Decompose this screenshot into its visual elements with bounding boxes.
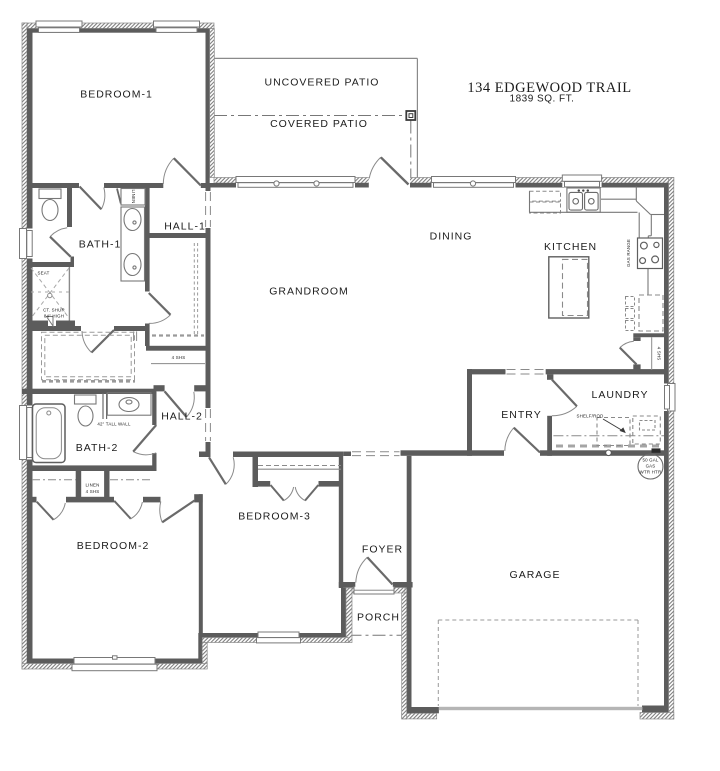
svg-text:GARAGE: GARAGE [510,569,561,581]
svg-text:CT. SHUR: CT. SHUR [43,308,65,313]
svg-text:ENTRY: ENTRY [501,409,541,421]
svg-text:KITCHEN: KITCHEN [544,241,597,253]
svg-text:1839 SQ. FT.: 1839 SQ. FT. [510,94,575,105]
svg-text:4 SHS: 4 SHS [86,489,100,494]
svg-text:GAS RANGE: GAS RANGE [626,239,631,267]
svg-text:SHELF/ROD: SHELF/ROD [577,414,604,419]
svg-text:SEAT: SEAT [38,271,50,276]
svg-text:GAS: GAS [646,464,656,469]
svg-text:42" TALL WALL: 42" TALL WALL [97,422,131,427]
svg-text:BEDROOM-1: BEDROOM-1 [80,89,153,101]
svg-text:HALL-1: HALL-1 [164,221,206,233]
svg-text:LAUNDRY: LAUNDRY [592,389,649,401]
svg-text:WTR HTR: WTR HTR [640,470,662,475]
svg-text:BATH-1: BATH-1 [79,239,122,251]
svg-text:HALL-2: HALL-2 [161,411,203,423]
svg-text:84" HIGH: 84" HIGH [44,314,64,319]
svg-text:4 SHS: 4 SHS [172,355,186,360]
svg-text:50 GAL: 50 GAL [642,458,658,463]
svg-text:4 SHS: 4 SHS [657,347,662,361]
svg-text:FOYER: FOYER [362,544,403,556]
svg-text:GRANDROOM: GRANDROOM [269,286,349,298]
svg-text:COVERED PATIO: COVERED PATIO [270,118,368,130]
svg-text:DINING: DINING [430,231,473,243]
svg-text:BEDROOM-2: BEDROOM-2 [77,540,150,552]
svg-text:PORCH: PORCH [357,612,400,624]
svg-text:BEDROOM-3: BEDROOM-3 [238,511,311,523]
svg-text:BATH-2: BATH-2 [76,442,119,454]
svg-text:LINEN: LINEN [86,483,100,488]
svg-text:LINEN: LINEN [131,190,136,204]
svg-text:UNCOVERED PATIO: UNCOVERED PATIO [265,77,380,89]
